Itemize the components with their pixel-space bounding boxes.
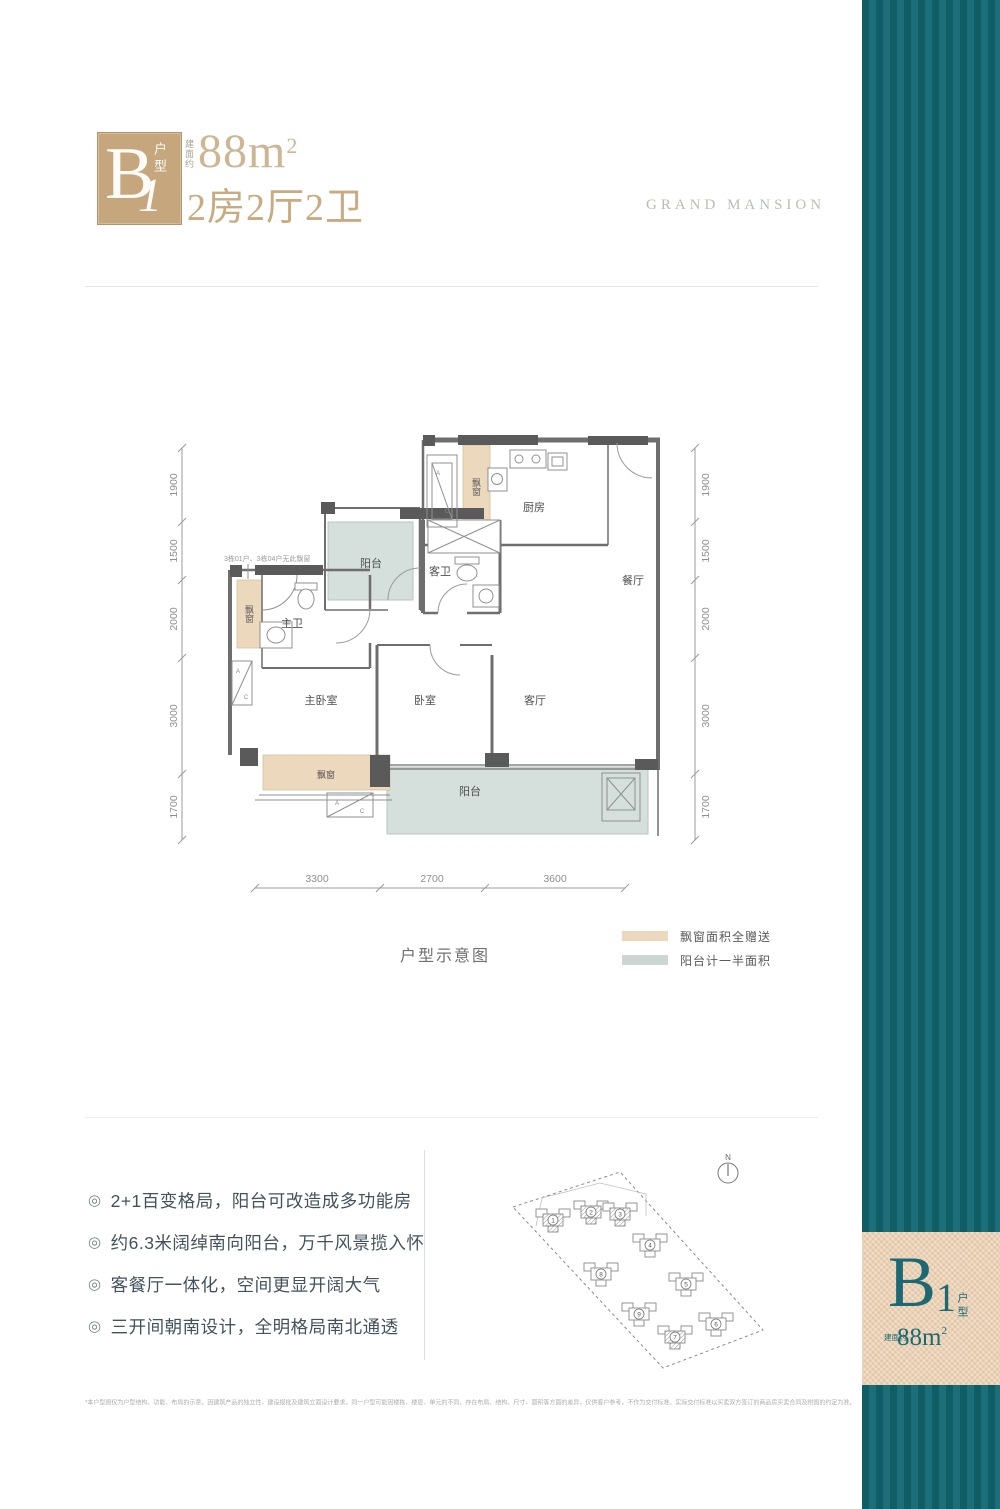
sidebar-badge-number: 1 bbox=[936, 1278, 956, 1318]
ac-letter: C bbox=[244, 695, 249, 701]
compass-north-icon: N bbox=[718, 1153, 738, 1183]
sidebar-area-prefix: 建面约 bbox=[884, 1334, 897, 1342]
room-label-living: 客厅 bbox=[524, 693, 546, 707]
legend-swatch-balcony bbox=[622, 955, 668, 965]
feature-list: ◎2+1百变格局，阳台可改造成多功能房 ◎约6.3米阔绰南向阳台，万千风景揽入怀… bbox=[88, 1190, 424, 1358]
room-label-bay-top: 飘窗 bbox=[471, 478, 481, 497]
dim-right-0: 1900 bbox=[700, 473, 712, 497]
room-label-master-bath: 主卫 bbox=[281, 617, 303, 630]
floor-plan-diagram: A C A C A C 厨房 客卫 餐厅 主卫 主卧室 卧室 客厅 阳台 阳台 bbox=[155, 413, 735, 913]
dim-right-2: 2000 bbox=[700, 607, 712, 631]
area-value: 88m2 bbox=[198, 124, 298, 179]
legend-row-bay: 飘窗面积全赠送 bbox=[622, 924, 771, 948]
building-number: 1 bbox=[551, 1218, 555, 1225]
dim-left-3: 3000 bbox=[168, 704, 180, 728]
building-number: 2 bbox=[589, 1210, 593, 1217]
badge-number: 1 bbox=[138, 171, 162, 221]
building-4: 4 bbox=[633, 1234, 667, 1257]
sidebar-unit-badge: B 1 户型 建面约88m2 bbox=[862, 1232, 1000, 1385]
room-label-master-bedroom: 主卧室 bbox=[305, 693, 338, 707]
feature-bullet-icon: ◎ bbox=[88, 1317, 102, 1335]
building-5: 5 bbox=[669, 1273, 703, 1296]
sidebar-badge-type-label: 户型 bbox=[954, 1292, 970, 1320]
feature-text: 客餐厅一体化，空间更显开阔大气 bbox=[111, 1272, 381, 1297]
legend-label-balcony: 阳台计一半面积 bbox=[680, 952, 771, 969]
dim-left-2: 2000 bbox=[168, 607, 180, 631]
ac-letter: A bbox=[436, 471, 440, 477]
sidebar-area-value: 88m bbox=[897, 1324, 941, 1351]
building-number: 4 bbox=[648, 1243, 652, 1250]
sidebar-area-sup: 2 bbox=[941, 1325, 947, 1337]
feature-bullet-icon: ◎ bbox=[88, 1275, 102, 1293]
building-number: 8 bbox=[599, 1272, 603, 1279]
building-number: 7 bbox=[673, 1335, 677, 1342]
header-divider bbox=[85, 286, 818, 287]
building-1: 1 bbox=[536, 1209, 570, 1232]
feature-text: 约6.3米阔绰南向阳台，万千风景揽入怀 bbox=[111, 1230, 425, 1255]
plan-caption: 户型示意图 bbox=[360, 942, 530, 966]
room-label-guest-bath: 客卫 bbox=[429, 564, 451, 578]
room-label-dining: 餐厅 bbox=[622, 573, 644, 587]
room-label-kitchen: 厨房 bbox=[523, 501, 545, 514]
feature-text: 三开间朝南设计，全明格局南北通透 bbox=[111, 1314, 399, 1339]
building-8: 8 bbox=[584, 1263, 618, 1286]
dim-bottom-0: 3300 bbox=[305, 873, 329, 885]
legend-swatch-bay-window bbox=[622, 931, 668, 941]
legend-row-balcony: 阳台计一半面积 bbox=[622, 948, 771, 972]
room-label-bay-left: 飘窗 bbox=[244, 605, 254, 624]
feature-item: ◎客餐厅一体化，空间更显开阔大气 bbox=[88, 1274, 424, 1294]
plan-legend: 飘窗面积全赠送 阳台计一半面积 bbox=[622, 924, 771, 972]
building-number: 5 bbox=[684, 1282, 688, 1289]
balcony-bottom-area bbox=[387, 767, 648, 834]
dim-bottom-1: 2700 bbox=[420, 873, 444, 885]
sidebar-badge-letter: B bbox=[888, 1246, 936, 1318]
room-label-balcony-bottom: 阳台 bbox=[459, 784, 481, 798]
room-count-line: 2房2厅2卫 bbox=[187, 176, 364, 231]
building-3: 3 bbox=[603, 1203, 637, 1226]
ac-letter: C bbox=[445, 509, 450, 515]
building-number: 9 bbox=[637, 1312, 641, 1319]
area-prefix-label: 建面约 bbox=[185, 139, 196, 169]
compass-north-label: N bbox=[725, 1153, 731, 1162]
dim-left-4: 1700 bbox=[168, 795, 180, 819]
floorplan-poster-page: B 1 户型 建面约88m2 B 户型 1 建面约 88m2 2房2厅2卫 GR… bbox=[0, 0, 1000, 1509]
area-number: 88m bbox=[198, 125, 286, 178]
dim-left-1: 1500 bbox=[168, 539, 180, 563]
ac-letter: C bbox=[360, 809, 365, 815]
site-plan: N 1 2 3 4 8 5 9 bbox=[450, 1126, 850, 1396]
feature-text: 2+1百变格局，阳台可改造成多功能房 bbox=[111, 1188, 412, 1213]
dim-right-4: 1700 bbox=[700, 795, 712, 819]
room-label-bedroom: 卧室 bbox=[414, 693, 436, 707]
brand-name: GRAND MANSION bbox=[646, 197, 825, 214]
legend-label-bay: 飘窗面积全赠送 bbox=[680, 928, 771, 945]
dim-bottom-2: 3600 bbox=[543, 873, 567, 885]
ac-letter: A bbox=[335, 801, 339, 807]
building-9: 9 bbox=[622, 1303, 656, 1326]
unit-type-badge: B 户型 1 bbox=[97, 132, 182, 225]
section-divider bbox=[85, 1117, 818, 1118]
site-boundary bbox=[513, 1172, 763, 1368]
sidebar-badge-area: 建面约88m2 bbox=[884, 1324, 947, 1352]
feature-item: ◎约6.3米阔绰南向阳台，万千风景揽入怀 bbox=[88, 1232, 424, 1252]
area-sup: 2 bbox=[286, 133, 298, 158]
room-label-bay-bottom: 飘窗 bbox=[317, 769, 335, 780]
bay-window-note: 3栋01户、3栋04户无此飘窗 bbox=[224, 554, 310, 563]
legal-disclaimer: *本户型图仅为户型结构、功能、布局的示意。因建筑产品的独立性、建设报批及建筑立面… bbox=[85, 1398, 820, 1407]
ac-letter: A bbox=[236, 669, 240, 675]
building-6: 6 bbox=[699, 1313, 733, 1336]
feature-bullet-icon: ◎ bbox=[88, 1191, 102, 1209]
dim-right-1: 1500 bbox=[700, 539, 712, 563]
dim-right-3: 3000 bbox=[700, 704, 712, 728]
dim-left-0: 1900 bbox=[168, 473, 180, 497]
feature-item: ◎三开间朝南设计，全明格局南北通透 bbox=[88, 1316, 424, 1336]
room-label-balcony-top: 阳台 bbox=[360, 556, 382, 570]
feature-item: ◎2+1百变格局，阳台可改造成多功能房 bbox=[88, 1190, 424, 1210]
building-number: 3 bbox=[618, 1212, 622, 1219]
feature-bullet-icon: ◎ bbox=[88, 1233, 102, 1251]
building-number: 6 bbox=[714, 1322, 718, 1329]
building-7: 7 bbox=[658, 1326, 692, 1349]
